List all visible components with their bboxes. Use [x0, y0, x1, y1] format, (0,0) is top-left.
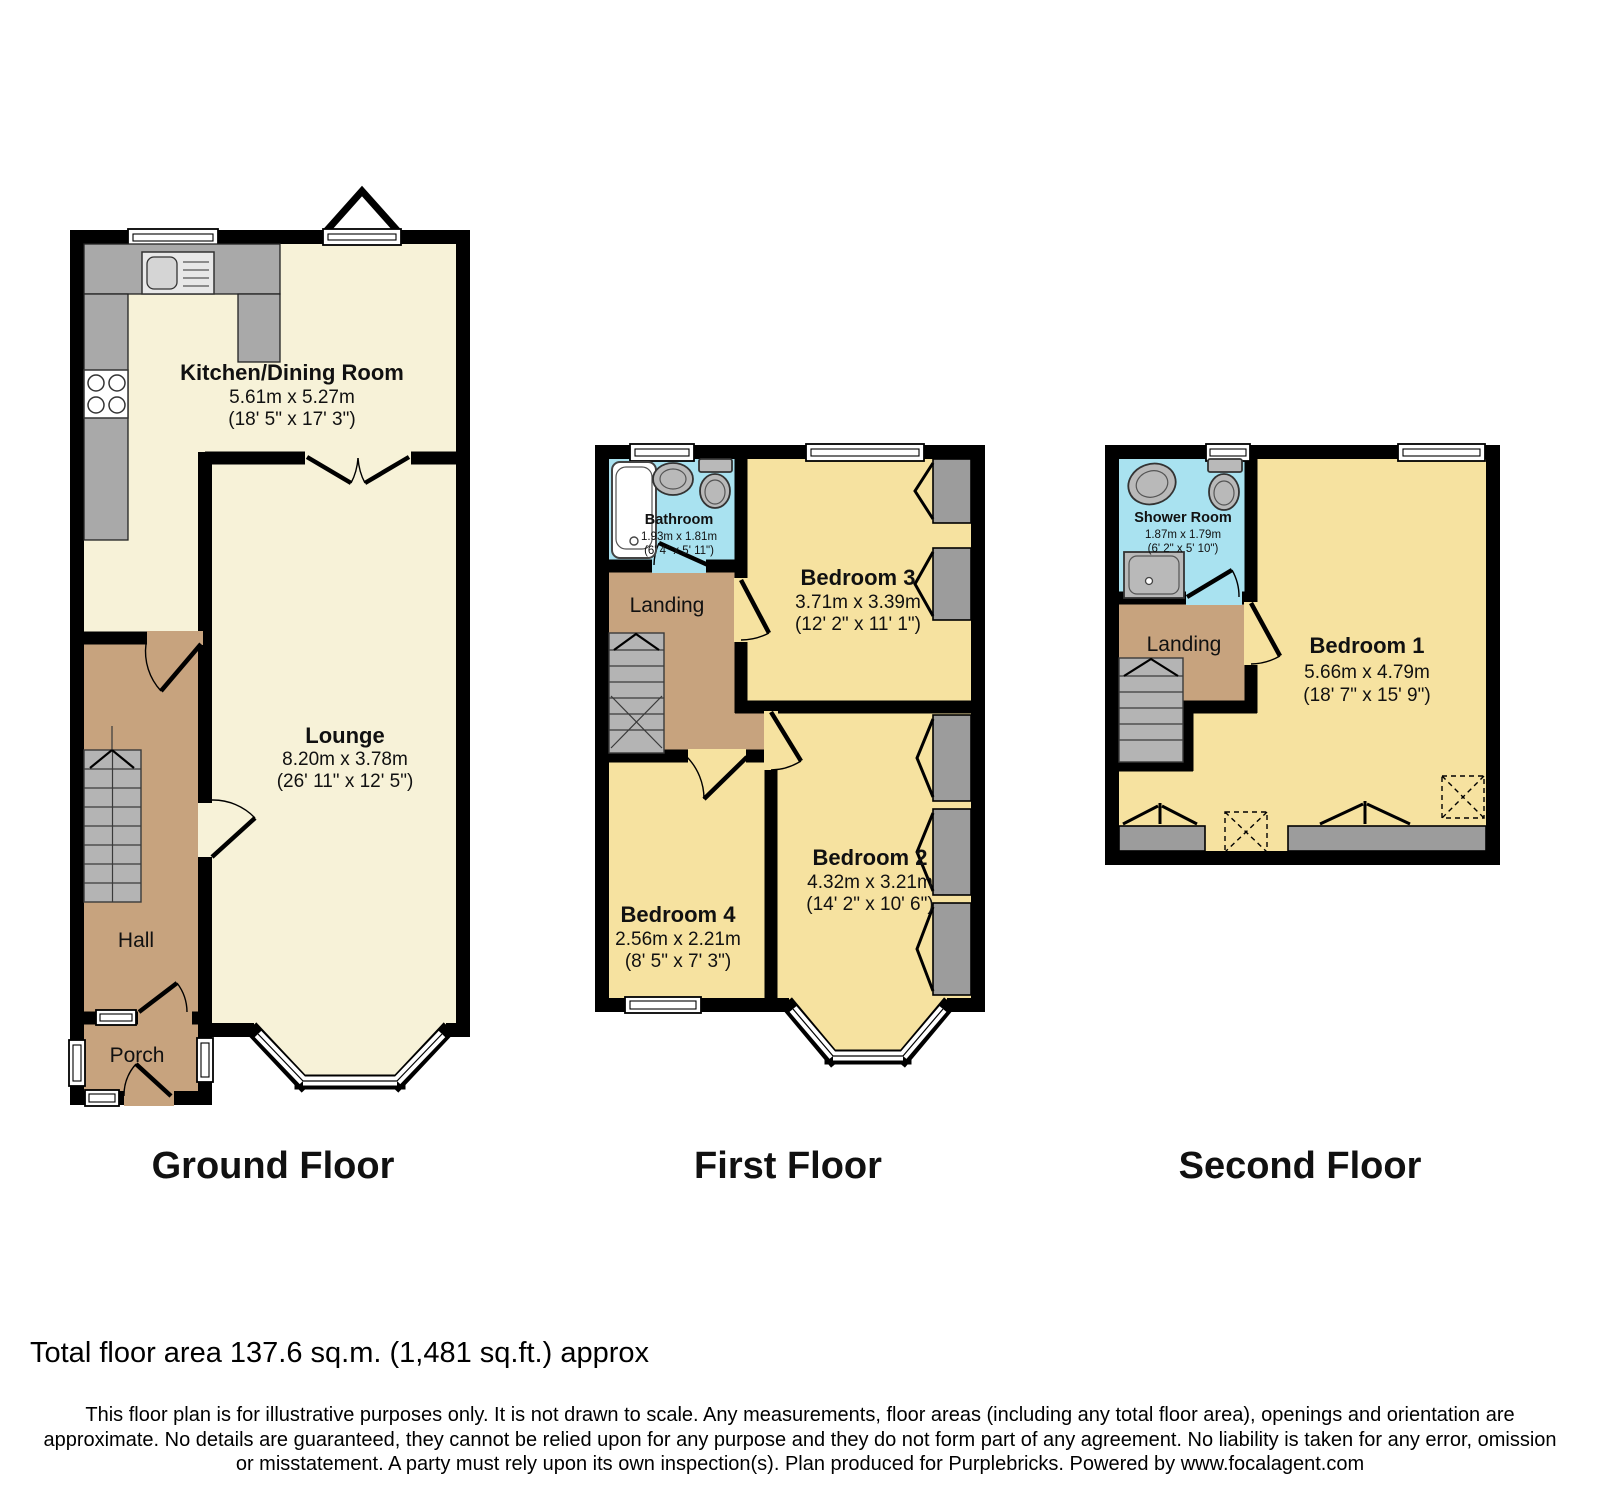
bedroom2-room-metric: 4.32m x 3.21m	[807, 872, 933, 893]
porch-room-name: Porch	[110, 1044, 165, 1067]
floorplan-page: Kitchen/Dining Room 5.61m x 5.27m (18' 5…	[0, 0, 1600, 1501]
first-floor-title: First Floor	[694, 1145, 882, 1187]
shower-room-metric: 1.87m x 1.79m	[1145, 529, 1221, 541]
landing2-room-name: Landing	[1147, 633, 1222, 656]
bedroom2-room-name: Bedroom 2	[813, 845, 928, 870]
kitchen-room-name: Kitchen/Dining Room	[180, 360, 404, 385]
bedroom4-room-name: Bedroom 4	[621, 902, 737, 927]
kitchen-room-imperial: (18' 5" x 17' 3")	[228, 409, 355, 430]
toilet	[699, 459, 732, 508]
ground-floor-plan: Kitchen/Dining Room 5.61m x 5.27m (18' 5…	[69, 191, 470, 1106]
lounge-door-opening	[198, 803, 213, 857]
second-floor-title: Second Floor	[1179, 1145, 1422, 1187]
gable-window	[323, 229, 401, 245]
bathroom-room-name: Bathroom	[645, 512, 713, 528]
hall-room-name: Hall	[118, 929, 154, 952]
bedroom3-room-name: Bedroom 3	[801, 565, 916, 590]
disclaimer-line: or misstatement. A party must rely upon …	[0, 1452, 1600, 1477]
shower-room-name: Shower Room	[1134, 510, 1231, 526]
bedroom3-room-imperial: (12' 2" x 11' 1")	[795, 614, 921, 635]
bedroom1-window	[1398, 444, 1485, 461]
porch-left-window	[69, 1040, 85, 1086]
bedroom4-door-opening	[688, 749, 746, 763]
kitchen-room-metric: 5.61m x 5.27m	[229, 387, 355, 408]
second-floor-plan: Shower Room 1.87m x 1.79m (6' 2" x 5' 10…	[1105, 444, 1500, 865]
hall-door-opening	[147, 631, 203, 645]
kitchen-sink	[142, 252, 214, 294]
lounge-room-metric: 8.20m x 3.78m	[282, 749, 408, 770]
total-floor-area: Total floor area 137.6 sq.m. (1,481 sq.f…	[30, 1337, 649, 1370]
hall-side-window	[96, 1010, 136, 1025]
bathtub	[612, 462, 656, 558]
first-staircase	[609, 633, 664, 753]
bedroom1-room-name: Bedroom 1	[1310, 633, 1425, 658]
bedroom3-window	[806, 444, 924, 461]
washbasin	[653, 463, 693, 495]
lounge-room-imperial: (26' 11" x 12' 5")	[277, 771, 414, 792]
landing1-room-name: Landing	[630, 594, 705, 617]
bathroom-room-metric: 1.93m x 1.81m	[641, 531, 717, 543]
porch-right-window	[197, 1038, 213, 1082]
bedroom2-room-imperial: (14' 2" x 10' 6")	[806, 894, 933, 915]
bedroom4-room-imperial: (8' 5" x 7' 3")	[625, 951, 731, 972]
ground-staircase	[84, 726, 141, 902]
bedroom1-room-metric: 5.66m x 4.79m	[1304, 662, 1430, 683]
first-floor-plan: Bathroom 1.93m x 1.81m (6' 4" x 5' 11") …	[595, 444, 985, 1060]
disclaimer: This floor plan is for illustrative purp…	[0, 1403, 1600, 1477]
bay2-opening	[789, 997, 947, 1013]
bathroom-room-imperial: (6' 4" x 5' 11")	[644, 545, 714, 557]
porch-door-opening	[138, 1011, 192, 1025]
shower-room-imperial: (6' 2" x 5' 10")	[1148, 543, 1219, 555]
bedroom4-window	[625, 997, 701, 1013]
hob	[84, 370, 128, 418]
bedroom3-room-metric: 3.71m x 3.39m	[795, 592, 921, 613]
lounge-room-name: Lounge	[305, 723, 384, 748]
ground-floor-title: Ground Floor	[152, 1145, 395, 1187]
bedroom4-room-metric: 2.56m x 2.21m	[615, 929, 741, 950]
disclaimer-line: approximate. No details are guaranteed, …	[0, 1428, 1600, 1453]
shower-tray	[1124, 552, 1184, 598]
bay-opening	[254, 1022, 446, 1038]
disclaimer-line: This floor plan is for illustrative purp…	[0, 1403, 1600, 1428]
bedroom1-room-imperial: (18' 7" x 15' 9")	[1303, 685, 1430, 706]
porch-front-window	[85, 1090, 119, 1106]
toilet	[1208, 459, 1242, 510]
floor-plan-svg: Kitchen/Dining Room 5.61m x 5.27m (18' 5…	[0, 0, 1600, 1300]
kitchen-counter	[238, 294, 280, 362]
second-staircase	[1119, 658, 1183, 762]
bathroom-window	[630, 444, 694, 461]
